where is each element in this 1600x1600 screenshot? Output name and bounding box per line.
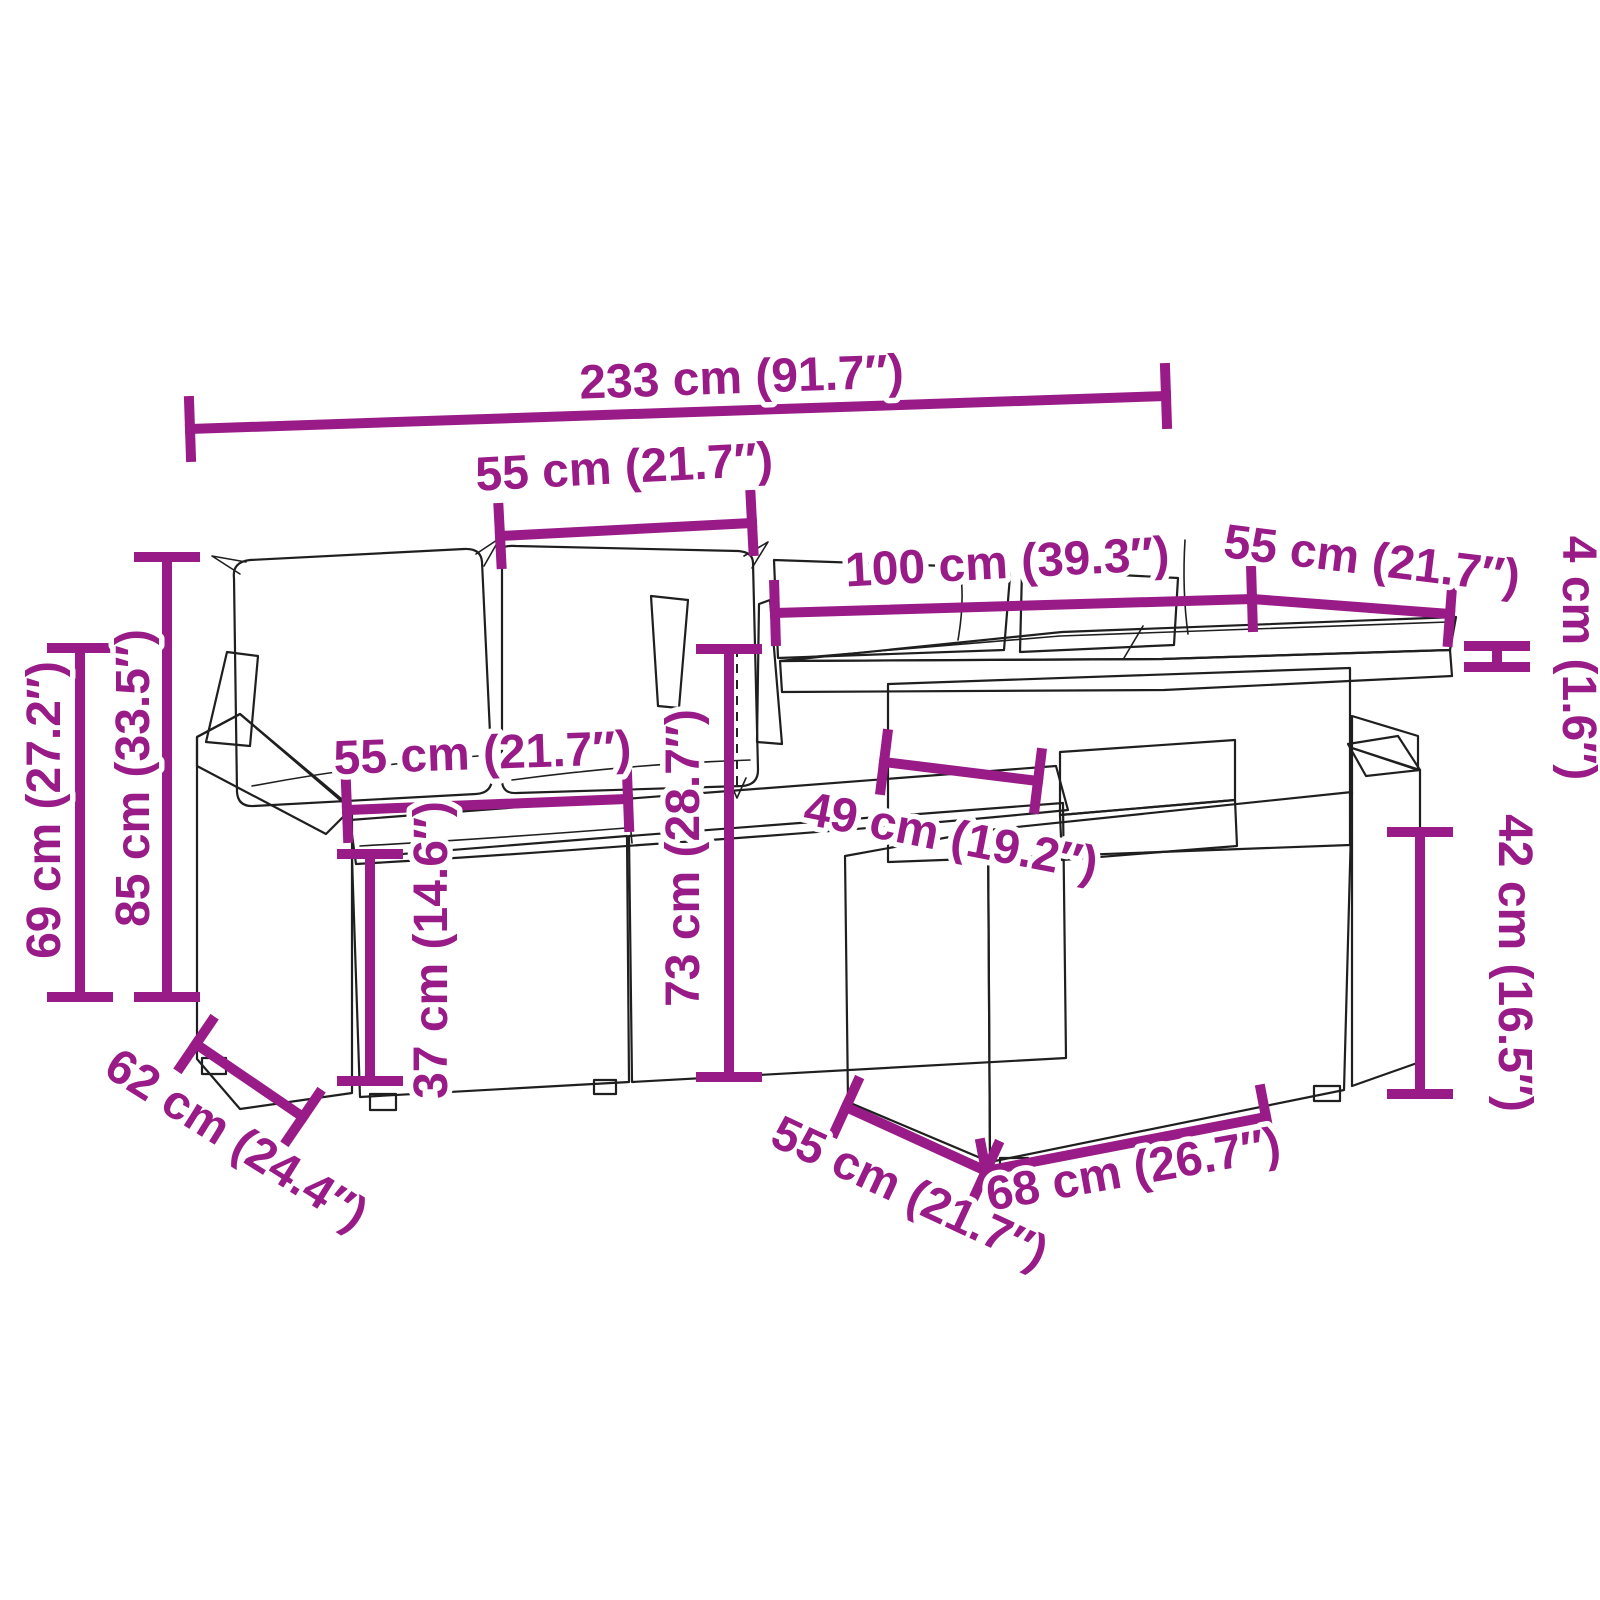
dimension-line-side-unit-height bbox=[1392, 832, 1448, 1094]
label-seat-width: 55 cm (21.7″) bbox=[333, 722, 632, 785]
dimension-line-back-cushion-width bbox=[499, 495, 754, 564]
label-armrest-height: 69 cm (27.2″) bbox=[18, 661, 71, 959]
label-table-depth: 55 cm (21.7″) bbox=[1221, 515, 1523, 604]
dimension-line-table-clearance bbox=[881, 734, 1042, 809]
sofa-right-return bbox=[1348, 716, 1420, 1086]
label-seat-height: 37 cm (14.6″) bbox=[405, 801, 458, 1099]
dimension-line-seat-height bbox=[342, 854, 398, 1081]
label-table-height: 73 cm (28.7″) bbox=[657, 709, 710, 1007]
sofa-back-post-middle bbox=[651, 596, 688, 708]
label-total-height: 85 cm (33.5″) bbox=[107, 629, 160, 927]
dimension-line-table-depth bbox=[1252, 586, 1452, 642]
label-back-cushion-width: 55 cm (21.7″) bbox=[474, 433, 774, 502]
label-table-length: 100 cm (39.3″) bbox=[844, 528, 1171, 598]
label-side-unit-height: 42 cm (16.5″) bbox=[1488, 814, 1541, 1112]
table-niche bbox=[1060, 740, 1235, 815]
glass-divider bbox=[1124, 626, 1143, 658]
label-total-width: 233 cm (91.7″) bbox=[578, 345, 904, 409]
sofa-base-left bbox=[352, 836, 629, 1097]
dimension-diagram: 233 cm (91.7″) 55 cm (21.7″) 100 cm (39.… bbox=[0, 0, 1600, 1600]
dimension-labels: 233 cm (91.7″) 55 cm (21.7″) 100 cm (39.… bbox=[18, 345, 1600, 1280]
sofa-back-post-left bbox=[206, 652, 258, 746]
tabletop-rim bbox=[780, 650, 1452, 692]
table bbox=[780, 617, 1456, 1174]
label-tabletop-thickness: 4 cm (1.6″) bbox=[1552, 536, 1600, 780]
dimension-line-tabletop-thickness bbox=[1469, 646, 1525, 667]
